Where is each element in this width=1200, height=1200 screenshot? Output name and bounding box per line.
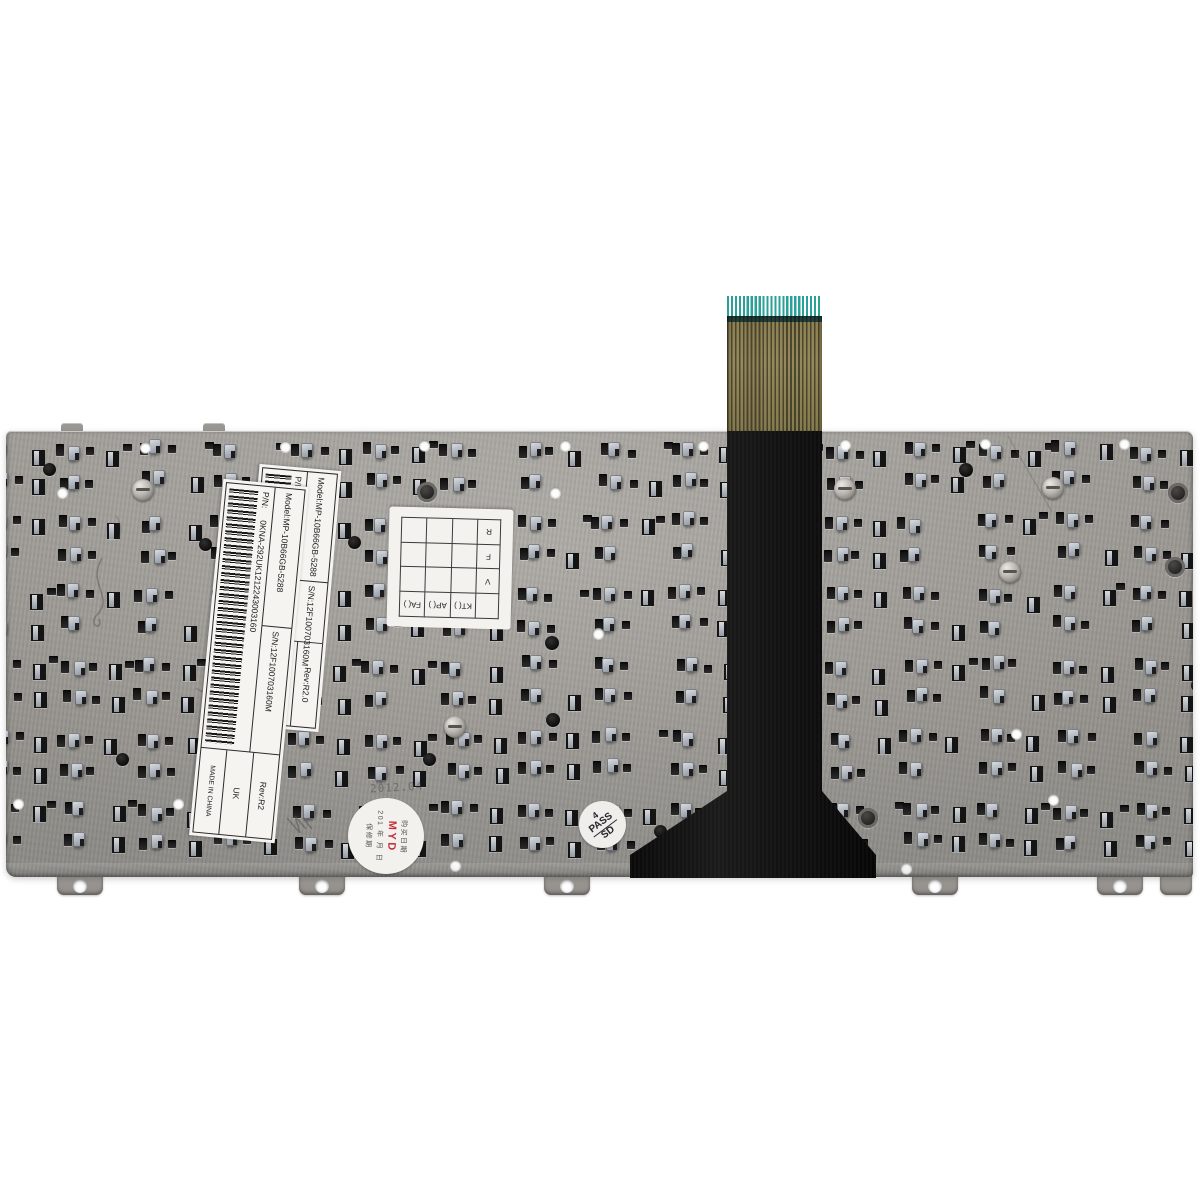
slot-insert: [875, 554, 880, 568]
slot-insert: [1153, 768, 1157, 775]
scissor-clip: [679, 584, 691, 599]
punched-slot: [521, 477, 529, 489]
punched-slot: [827, 693, 835, 705]
scissor-clip: [452, 691, 464, 706]
slot-insert: [570, 843, 575, 857]
slot-insert: [924, 839, 928, 846]
slot-with-insert: [338, 591, 351, 607]
slot-insert: [416, 742, 421, 756]
slot-insert: [183, 698, 188, 712]
scissor-clip: [1144, 688, 1156, 703]
scissor-clip: [1064, 441, 1076, 456]
punched-slot: [1087, 766, 1095, 774]
key-mount-module: [592, 515, 668, 563]
slot-with-insert: [872, 669, 885, 685]
slot-insert: [115, 807, 120, 821]
punched-slot: [86, 447, 94, 455]
punched-slot: [592, 731, 600, 743]
punched-slot: [623, 764, 631, 772]
slot-insert: [651, 482, 656, 496]
slot-insert: [570, 696, 575, 710]
key-mount-module: [59, 516, 135, 564]
slot-insert: [612, 734, 616, 741]
punched-slot: [168, 445, 176, 453]
slot-insert: [382, 451, 386, 458]
scissor-clip: [153, 470, 165, 485]
slot-insert: [1106, 842, 1111, 856]
slot-insert: [459, 698, 463, 705]
punched-slot: [352, 659, 361, 666]
punched-slot: [934, 835, 942, 843]
qc-header-fa: FA( ): [399, 591, 425, 616]
slot-insert: [1071, 592, 1075, 599]
scissor-clip: [1065, 805, 1077, 820]
punched-slot: [630, 480, 638, 488]
slot-insert: [923, 666, 927, 673]
punched-slot: [440, 478, 448, 490]
punched-slot: [622, 733, 630, 741]
punched-slot: [1132, 620, 1140, 632]
slot-insert: [1147, 522, 1151, 529]
slot-with-insert: [107, 592, 120, 608]
through-hole: [140, 442, 151, 453]
punched-slot: [470, 804, 478, 812]
punched-slot: [931, 622, 939, 630]
punched-slot: [365, 519, 373, 531]
through-hole: [550, 487, 561, 498]
slot-insert: [153, 697, 157, 704]
slot-insert: [692, 479, 696, 486]
scissor-clip: [685, 689, 697, 704]
scissor-clip: [910, 762, 922, 777]
punched-slot: [1163, 837, 1171, 845]
punched-slot: [1053, 615, 1061, 627]
slot-with-insert: [104, 739, 117, 755]
punched-slot: [1053, 662, 1061, 674]
slot-insert: [721, 771, 726, 785]
slot-insert: [1074, 736, 1078, 743]
punched-slot: [139, 838, 147, 850]
round-hole: [348, 536, 361, 549]
slot-insert: [1069, 697, 1073, 704]
punched-slot: [519, 446, 527, 458]
scissor-clip: [305, 837, 317, 852]
punched-slot: [1054, 693, 1062, 705]
punched-slot: [624, 692, 632, 700]
scissor-clip: [372, 660, 384, 675]
slot-insert: [496, 739, 501, 753]
key-mount-module: [517, 588, 593, 636]
slot-with-insert: [873, 451, 886, 467]
scissor-clip: [610, 475, 622, 490]
key-mount-module: [519, 729, 595, 777]
punched-slot: [599, 474, 607, 486]
slot-insert: [1000, 662, 1004, 669]
qc-cell: [401, 517, 427, 542]
slot-with-insert: [1180, 450, 1193, 466]
slot-with-insert: [1182, 623, 1193, 639]
punched-slot: [933, 694, 941, 702]
scissor-clip: [915, 473, 927, 488]
slot-insert: [692, 696, 696, 703]
punched-slot: [827, 621, 835, 633]
slot-insert: [1151, 695, 1155, 702]
punched-slot: [904, 832, 912, 844]
screw-hole: [315, 879, 329, 893]
slot-insert: [76, 523, 80, 530]
scissor-clip: [453, 477, 465, 492]
qc-cell: [400, 567, 426, 592]
slot-with-insert: [338, 699, 351, 715]
slot-with-insert: [34, 692, 47, 708]
punched-slot: [857, 769, 865, 777]
warranty-stamp-text: 购买日期 MYD 201 年 月 日 保修期: [363, 809, 410, 863]
punched-slot: [934, 661, 942, 669]
slot-insert: [643, 591, 648, 605]
qc-cell: [451, 568, 477, 593]
punched-slot: [56, 444, 64, 456]
scissor-clip: [67, 583, 79, 598]
key-mount-module: [1053, 661, 1129, 709]
slot-with-insert: [1184, 808, 1193, 824]
key-mount-module: [6, 514, 59, 562]
punched-slot: [1130, 447, 1138, 459]
punched-slot: [393, 476, 401, 484]
punched-slot: [549, 733, 557, 741]
scissor-clip: [1071, 763, 1083, 778]
slot-insert: [1102, 445, 1107, 459]
key-mount-module: [58, 733, 134, 781]
slot-insert: [152, 624, 156, 631]
slot-with-insert: [32, 450, 45, 466]
punched-slot: [1120, 805, 1129, 812]
punched-slot: [549, 660, 557, 668]
slot-insert: [340, 592, 345, 606]
punched-slot: [393, 737, 401, 745]
slot-insert: [75, 623, 79, 630]
scissor-clip: [6, 760, 8, 775]
slot-with-insert: [1032, 695, 1045, 711]
scissor-clip: [990, 445, 1002, 460]
slot-insert: [993, 810, 997, 817]
stamp-text-date: 201 年 月 日: [374, 810, 386, 862]
slot-insert: [1152, 667, 1156, 674]
screw-hole: [73, 879, 87, 893]
punched-slot: [1134, 546, 1142, 558]
qc-cell: [425, 567, 451, 592]
plate-date-stamp: 2012.04: [370, 780, 424, 796]
punched-slot: [88, 551, 96, 559]
punched-slot: [580, 590, 589, 597]
stamp-myd-code: MYD: [385, 820, 398, 852]
punched-slot: [1058, 730, 1066, 742]
slot-insert: [382, 698, 386, 705]
punched-slot: [89, 663, 97, 671]
part-number-prefix: P/N:: [260, 491, 272, 508]
scissor-clip: [374, 518, 386, 533]
screw-boss: [444, 716, 466, 738]
punched-slot: [138, 766, 146, 778]
punched-slot: [441, 801, 449, 813]
slot-with-insert: [1182, 665, 1193, 681]
slot-insert: [609, 665, 613, 672]
key-mount-module: [904, 801, 980, 849]
punched-slot: [620, 662, 628, 670]
slot-with-insert: [1103, 590, 1116, 606]
slot-with-insert: [32, 519, 45, 535]
slot-insert: [570, 452, 575, 466]
punched-slot: [1136, 835, 1144, 847]
key-mount-module: [6, 802, 59, 850]
slot-insert: [922, 480, 926, 487]
punched-slot: [1039, 512, 1048, 519]
punched-slot: [59, 515, 67, 527]
scissor-clip: [1146, 731, 1158, 746]
punched-slot: [1041, 803, 1050, 810]
slot-with-insert: [338, 625, 351, 641]
slot-insert: [689, 739, 693, 746]
scissor-clip: [604, 587, 616, 602]
punched-slot: [969, 658, 978, 665]
slot-insert: [33, 626, 38, 640]
punched-slot: [1079, 666, 1087, 674]
punched-slot: [439, 444, 447, 456]
slot-insert: [843, 523, 847, 530]
slot-insert: [78, 770, 82, 777]
scissor-clip: [224, 444, 236, 459]
slot-insert: [1025, 520, 1030, 534]
slot-insert: [644, 520, 649, 534]
slot-with-insert: [490, 808, 503, 824]
slot-insert: [537, 737, 541, 744]
slot-insert: [109, 593, 114, 607]
punched-slot: [474, 735, 482, 743]
punched-slot: [15, 476, 23, 484]
key-mount-module: [288, 733, 364, 781]
slot-insert: [1032, 767, 1037, 781]
scissor-clip: [530, 442, 542, 457]
punched-slot: [852, 696, 860, 704]
punched-slot: [518, 805, 526, 817]
scissor-clip: [986, 803, 998, 818]
slot-with-insert: [1104, 841, 1117, 857]
slot-insert: [954, 837, 959, 851]
key-mount-module: [58, 445, 134, 493]
key-mount-module: [6, 656, 60, 704]
slot-insert: [82, 697, 86, 704]
punched-slot: [396, 766, 404, 774]
slot-insert: [75, 453, 79, 460]
slot-insert: [537, 695, 541, 702]
slot-insert: [1075, 549, 1079, 556]
slot-with-insert: [32, 479, 45, 495]
qc-cell: [426, 543, 452, 568]
key-mount-module: [6, 443, 61, 491]
punched-slot: [429, 441, 438, 448]
punched-slot: [291, 444, 299, 456]
scissor-clip: [451, 800, 463, 815]
slot-insert: [955, 808, 960, 822]
punched-slot: [983, 476, 991, 488]
slot-insert: [1029, 598, 1034, 612]
slot-insert: [381, 525, 385, 532]
screw-boss: [132, 479, 154, 501]
punched-slot: [518, 515, 526, 527]
punched-slot: [1005, 515, 1013, 523]
scissor-clip: [837, 586, 849, 601]
punched-slot: [932, 444, 940, 452]
qc-cell: [427, 518, 453, 543]
punched-slot: [900, 550, 908, 562]
scissor-clip: [68, 733, 80, 748]
slot-with-insert: [953, 447, 966, 463]
punched-slot: [165, 591, 173, 599]
punched-slot: [14, 693, 22, 701]
punched-slot: [979, 833, 987, 845]
key-mount-module: [1135, 803, 1193, 851]
slot-insert: [535, 628, 539, 635]
punched-slot: [825, 662, 833, 674]
key-mount-module: [1132, 515, 1193, 563]
slot-with-insert: [113, 806, 126, 822]
slot-with-insert: [1180, 737, 1193, 753]
slot-insert: [537, 767, 541, 774]
punched-slot: [441, 662, 449, 674]
key-mount-module: [978, 590, 1054, 638]
slot-insert: [312, 844, 316, 851]
slot-with-insert: [643, 809, 656, 825]
punched-slot: [547, 549, 555, 557]
scissor-clip: [604, 688, 616, 703]
punched-slot: [905, 660, 913, 672]
punched-slot: [64, 834, 72, 846]
scissor-clip: [68, 446, 80, 461]
slot-insert: [190, 739, 195, 753]
scissor-clip: [452, 833, 464, 848]
round-hole: [1191, 679, 1193, 692]
slot-with-insert: [952, 625, 965, 641]
slot-insert: [722, 483, 727, 497]
key-mount-module: [1134, 730, 1193, 778]
slot-with-insert: [31, 625, 44, 641]
punched-slot: [210, 515, 218, 527]
slot-insert: [875, 522, 880, 536]
punched-slot: [85, 736, 93, 744]
scissor-clip: [993, 655, 1005, 670]
scissor-clip: [602, 658, 614, 673]
slot-insert: [1078, 770, 1082, 777]
key-mount-module: [824, 517, 900, 565]
slot-with-insert: [649, 481, 662, 497]
key-mount-module: [1054, 585, 1130, 633]
slot-with-insert: [189, 841, 202, 857]
scissor-clip: [458, 764, 470, 779]
qc-checklist-label: KT( ) AP( ) FA( ) V F R: [386, 506, 513, 629]
punched-slot: [162, 692, 170, 700]
scissor-clip: [75, 690, 87, 705]
slot-insert: [848, 772, 852, 779]
slot-insert: [992, 520, 996, 527]
slot-insert: [610, 624, 614, 631]
round-hole: [423, 753, 436, 766]
slot-insert: [998, 735, 1002, 742]
punched-slot: [521, 689, 529, 701]
punched-slot: [546, 765, 554, 773]
slot-insert: [383, 741, 387, 748]
scissor-clip: [912, 619, 924, 634]
punched-slot: [903, 587, 911, 599]
punched-slot: [697, 587, 705, 595]
slot-with-insert: [112, 697, 125, 713]
scissor-clip: [993, 689, 1005, 704]
slot-insert: [459, 840, 463, 847]
through-hole: [593, 628, 604, 639]
slot-insert: [108, 452, 113, 466]
slot-insert: [1153, 811, 1157, 818]
punched-slot: [365, 735, 373, 747]
cable-flex-film: [727, 316, 822, 433]
slot-with-insert: [952, 836, 965, 852]
punched-slot: [897, 517, 905, 529]
scissor-clip: [375, 766, 387, 781]
punched-slot: [166, 808, 174, 816]
slot-insert: [305, 738, 309, 745]
punched-slot: [167, 768, 175, 776]
slot-insert: [308, 450, 312, 457]
slot-insert: [35, 665, 40, 679]
punched-slot: [57, 584, 65, 596]
through-hole: [901, 863, 912, 874]
slot-insert: [721, 448, 726, 462]
slot-insert: [645, 810, 650, 824]
scissor-clip: [1145, 660, 1157, 675]
through-hole: [560, 440, 571, 451]
scissor-clip: [1068, 542, 1080, 557]
punched-slot: [518, 588, 526, 600]
scissor-clip: [685, 472, 697, 487]
slot-insert: [1074, 520, 1078, 527]
key-mount-module: [133, 658, 209, 706]
punched-slot: [128, 800, 137, 807]
slot-with-insert: [1023, 519, 1036, 535]
slot-with-insert: [106, 451, 119, 467]
punched-slot: [1080, 809, 1088, 817]
key-mount-module: [600, 444, 676, 492]
punched-slot: [213, 444, 221, 456]
slot-insert: [1184, 666, 1189, 680]
scissor-clip: [836, 694, 848, 709]
key-mount-module: [976, 802, 1052, 850]
punched-slot: [474, 767, 482, 775]
slot-insert: [615, 449, 619, 456]
punched-slot: [899, 730, 907, 742]
key-mount-module: [442, 800, 518, 848]
slot-with-insert: [951, 477, 964, 493]
slot-insert: [458, 450, 462, 457]
slot-insert: [34, 451, 39, 465]
slot-insert: [1034, 696, 1039, 710]
scissor-clip: [145, 617, 157, 632]
punched-slot: [1133, 476, 1141, 488]
punched-slot: [825, 517, 833, 529]
scissor-clip: [528, 544, 540, 559]
scissor-clip: [68, 616, 80, 631]
slot-insert: [156, 446, 160, 453]
slot-with-insert: [489, 836, 502, 852]
qc-header-kt: KT( ): [450, 593, 476, 618]
scissor-clip: [916, 687, 928, 702]
key-mount-module: [64, 800, 140, 848]
